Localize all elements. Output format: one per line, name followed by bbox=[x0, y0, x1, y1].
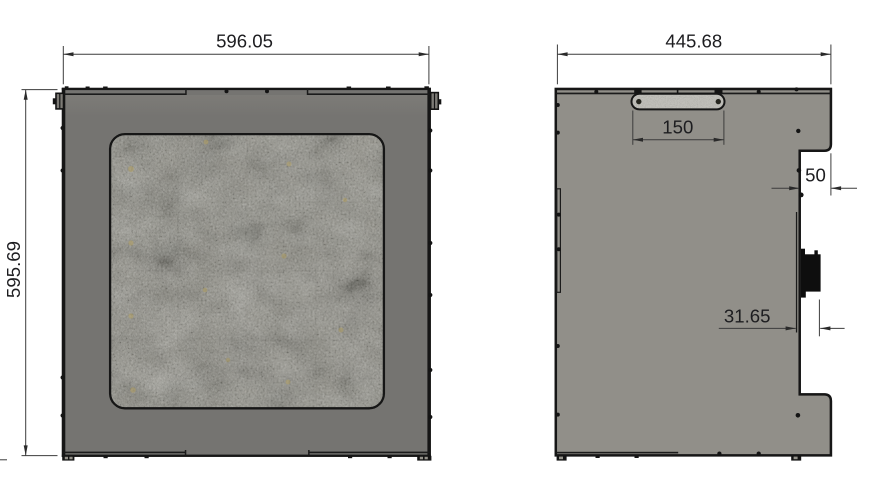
svg-text:596.05: 596.05 bbox=[216, 31, 273, 52]
svg-text:150: 150 bbox=[662, 116, 693, 137]
svg-text:31.65: 31.65 bbox=[724, 305, 771, 326]
svg-text:50: 50 bbox=[805, 164, 826, 185]
svg-text:595.69: 595.69 bbox=[3, 241, 24, 298]
svg-text:445.68: 445.68 bbox=[665, 31, 722, 52]
